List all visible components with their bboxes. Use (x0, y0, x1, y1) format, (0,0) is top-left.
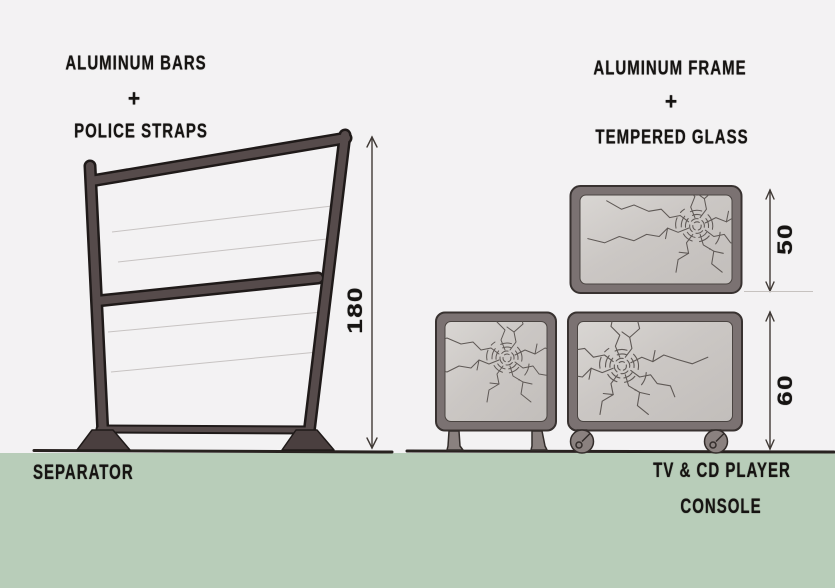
separator-label: SEPARATOR (33, 461, 134, 485)
console-feet (447, 431, 547, 450)
left-material-plus: + (128, 86, 140, 114)
left-material-line1: ALUMINUM BARS (65, 52, 206, 75)
console-label-line2: CONSOLE (680, 495, 761, 519)
right-material-plus: + (665, 89, 677, 117)
console-label-line1: TV & CD PLAYER (653, 459, 791, 483)
console-bottom-left-unit (403, 312, 585, 450)
separator-drawing (77, 135, 346, 450)
console-casters (571, 430, 728, 453)
left-material-line2: POLICE STRAPS (74, 120, 208, 143)
design-sketch-canvas: ALUMINUM BARS + POLICE STRAPS ALUMINUM F… (0, 0, 835, 588)
dimension-50: 50 (774, 223, 798, 255)
right-material-line1: ALUMINUM FRAME (593, 57, 746, 80)
right-material-line2: TEMPERED GLASS (595, 126, 748, 149)
console-top-unit (571, 178, 779, 293)
dimension-60: 60 (774, 374, 798, 406)
dimension-180: 180 (344, 286, 368, 334)
